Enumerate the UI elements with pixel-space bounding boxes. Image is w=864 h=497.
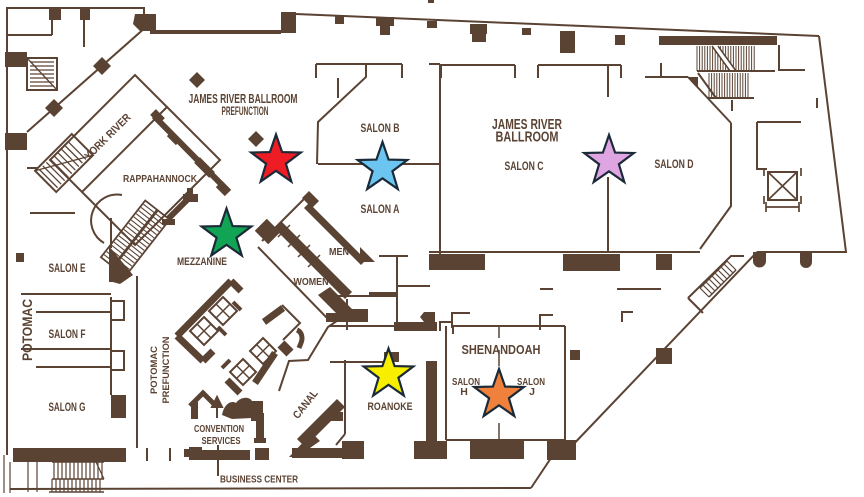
svg-text:SALON E: SALON E xyxy=(49,263,86,275)
svg-text:SHENANDOAH: SHENANDOAH xyxy=(462,342,541,357)
svg-text:SALON C: SALON C xyxy=(505,161,544,173)
svg-text:POTOMAC: POTOMAC xyxy=(149,346,160,394)
svg-text:SALON D: SALON D xyxy=(655,159,694,171)
svg-text:RAPPAHANNOCK: RAPPAHANNOCK xyxy=(123,173,197,185)
svg-text:SALON B: SALON B xyxy=(361,123,400,135)
svg-text:BALLROOM: BALLROOM xyxy=(496,130,559,146)
svg-text:H: H xyxy=(460,386,468,398)
svg-text:ROANOKE: ROANOKE xyxy=(368,401,413,413)
svg-text:SALON A: SALON A xyxy=(361,204,400,216)
svg-text:PREFUNCTION: PREFUNCTION xyxy=(222,104,269,118)
svg-text:BUSINESS CENTER: BUSINESS CENTER xyxy=(220,474,298,486)
svg-text:SERVICES: SERVICES xyxy=(202,435,241,447)
svg-text:MEZZANINE: MEZZANINE xyxy=(177,256,227,268)
svg-text:CONVENTION: CONVENTION xyxy=(194,423,244,435)
svg-text:J: J xyxy=(529,386,535,398)
svg-text:CANAL: CANAL xyxy=(291,388,321,422)
svg-text:MEN: MEN xyxy=(329,246,349,258)
svg-text:POTOMAC: POTOMAC xyxy=(19,299,35,361)
svg-text:WOMEN: WOMEN xyxy=(294,276,329,288)
svg-text:SALON F: SALON F xyxy=(49,329,86,341)
svg-text:SALON G: SALON G xyxy=(49,402,86,414)
svg-text:PREFUNCTION: PREFUNCTION xyxy=(161,336,172,403)
